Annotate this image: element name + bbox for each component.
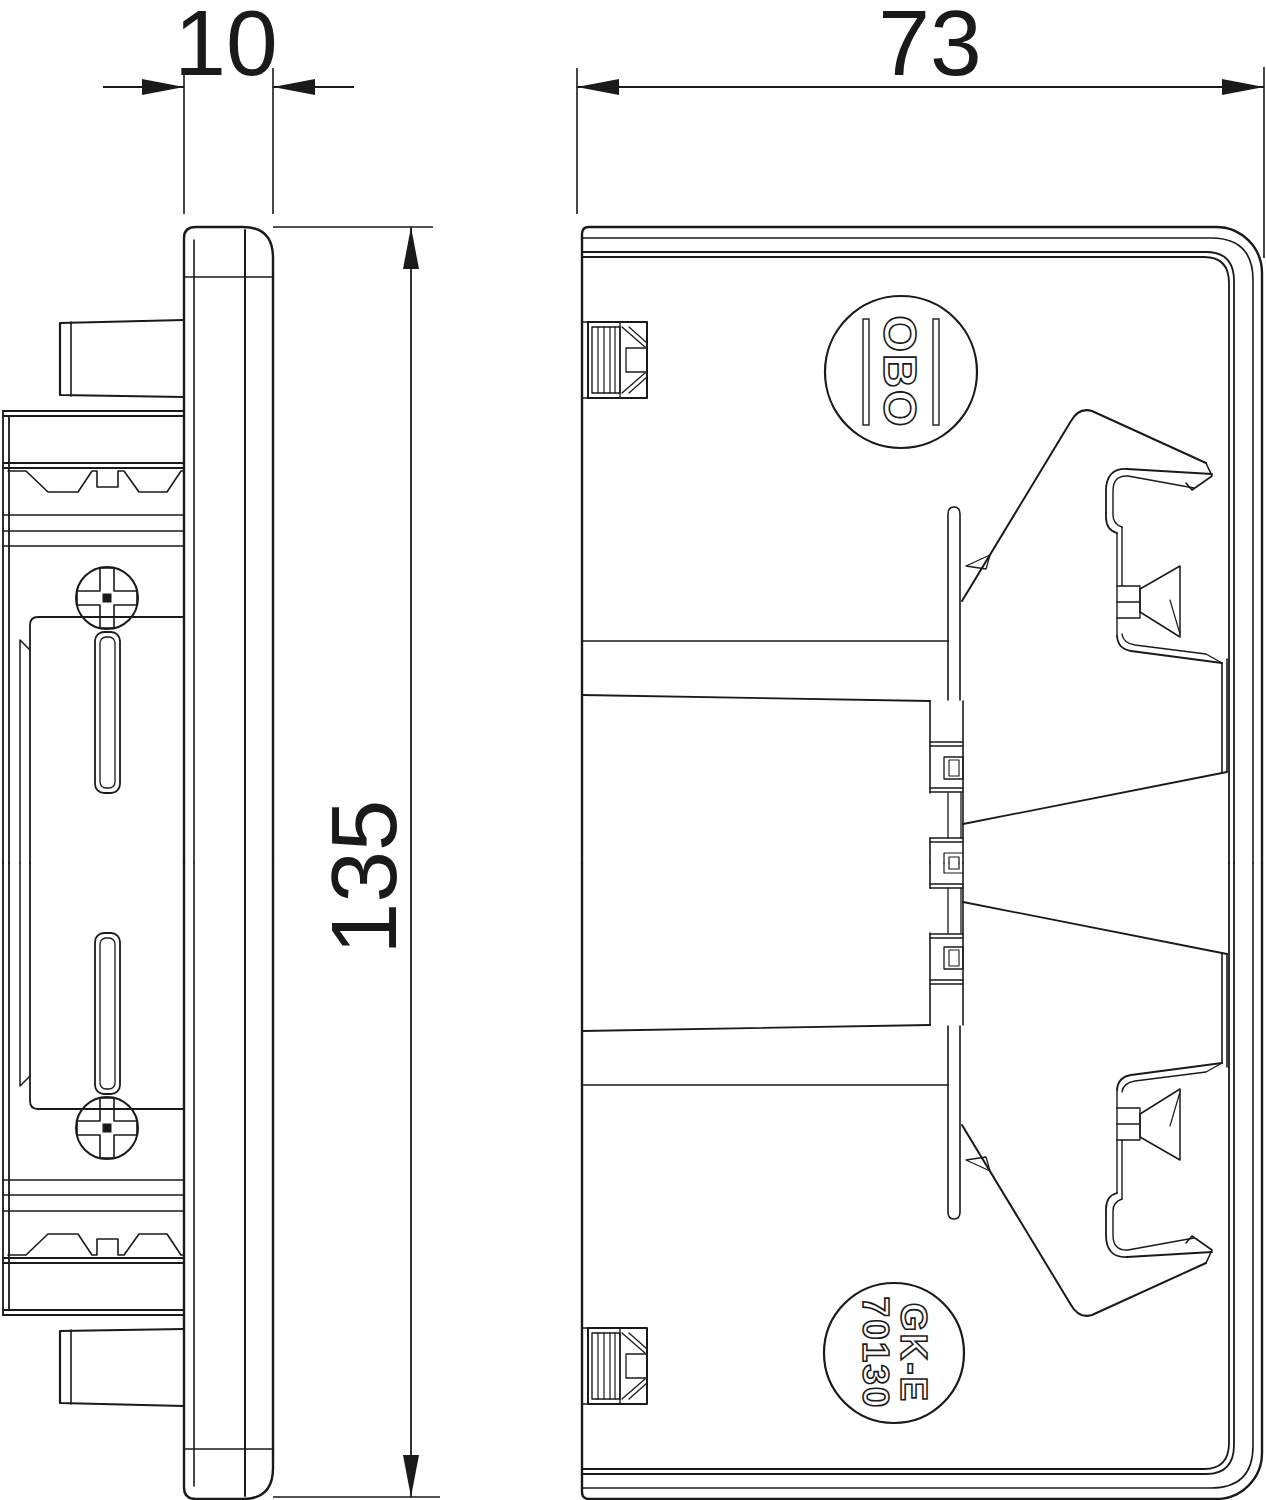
brand-logo-text: OBO xyxy=(874,315,927,428)
dimension-label-10: 10 xyxy=(174,0,277,95)
technical-drawing-page: OBO GK-E 70130 10 73 135 xyxy=(0,0,1266,1500)
part-number-line1: GK-E xyxy=(893,1303,934,1404)
drawing-background xyxy=(0,0,1266,1500)
dimension-label-135: 135 xyxy=(312,799,416,954)
part-number-line2: 70130 xyxy=(855,1297,896,1410)
dimension-drawing: OBO GK-E 70130 10 73 135 xyxy=(0,0,1266,1500)
dimension-label-73: 73 xyxy=(878,0,981,95)
